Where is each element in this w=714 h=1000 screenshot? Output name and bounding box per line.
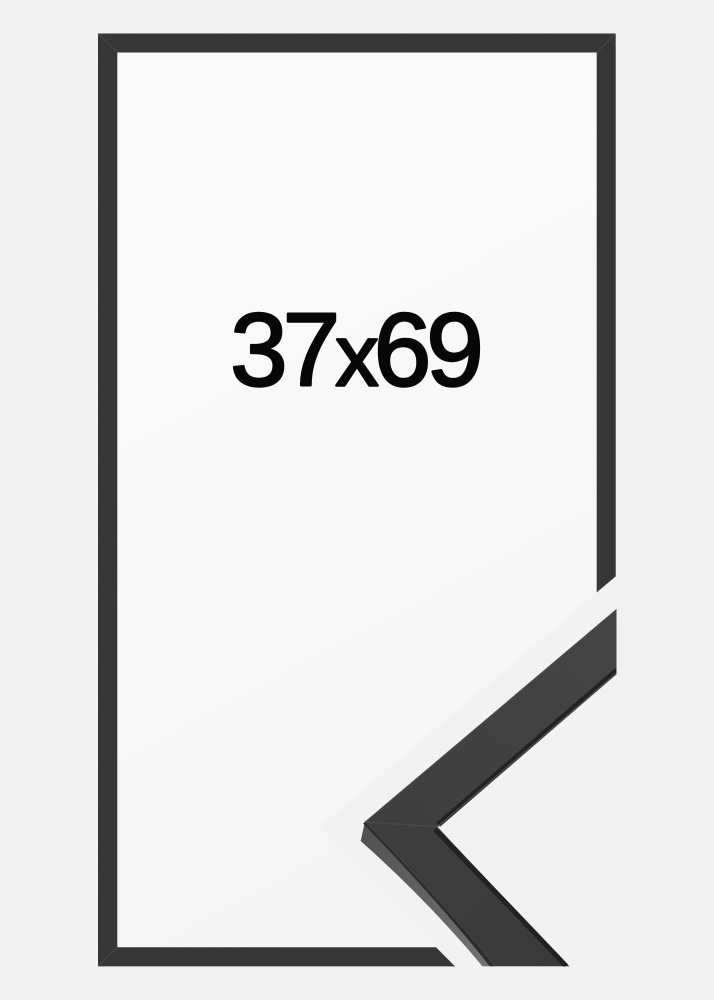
svg-text:37x69: 37x69 [230,291,479,407]
